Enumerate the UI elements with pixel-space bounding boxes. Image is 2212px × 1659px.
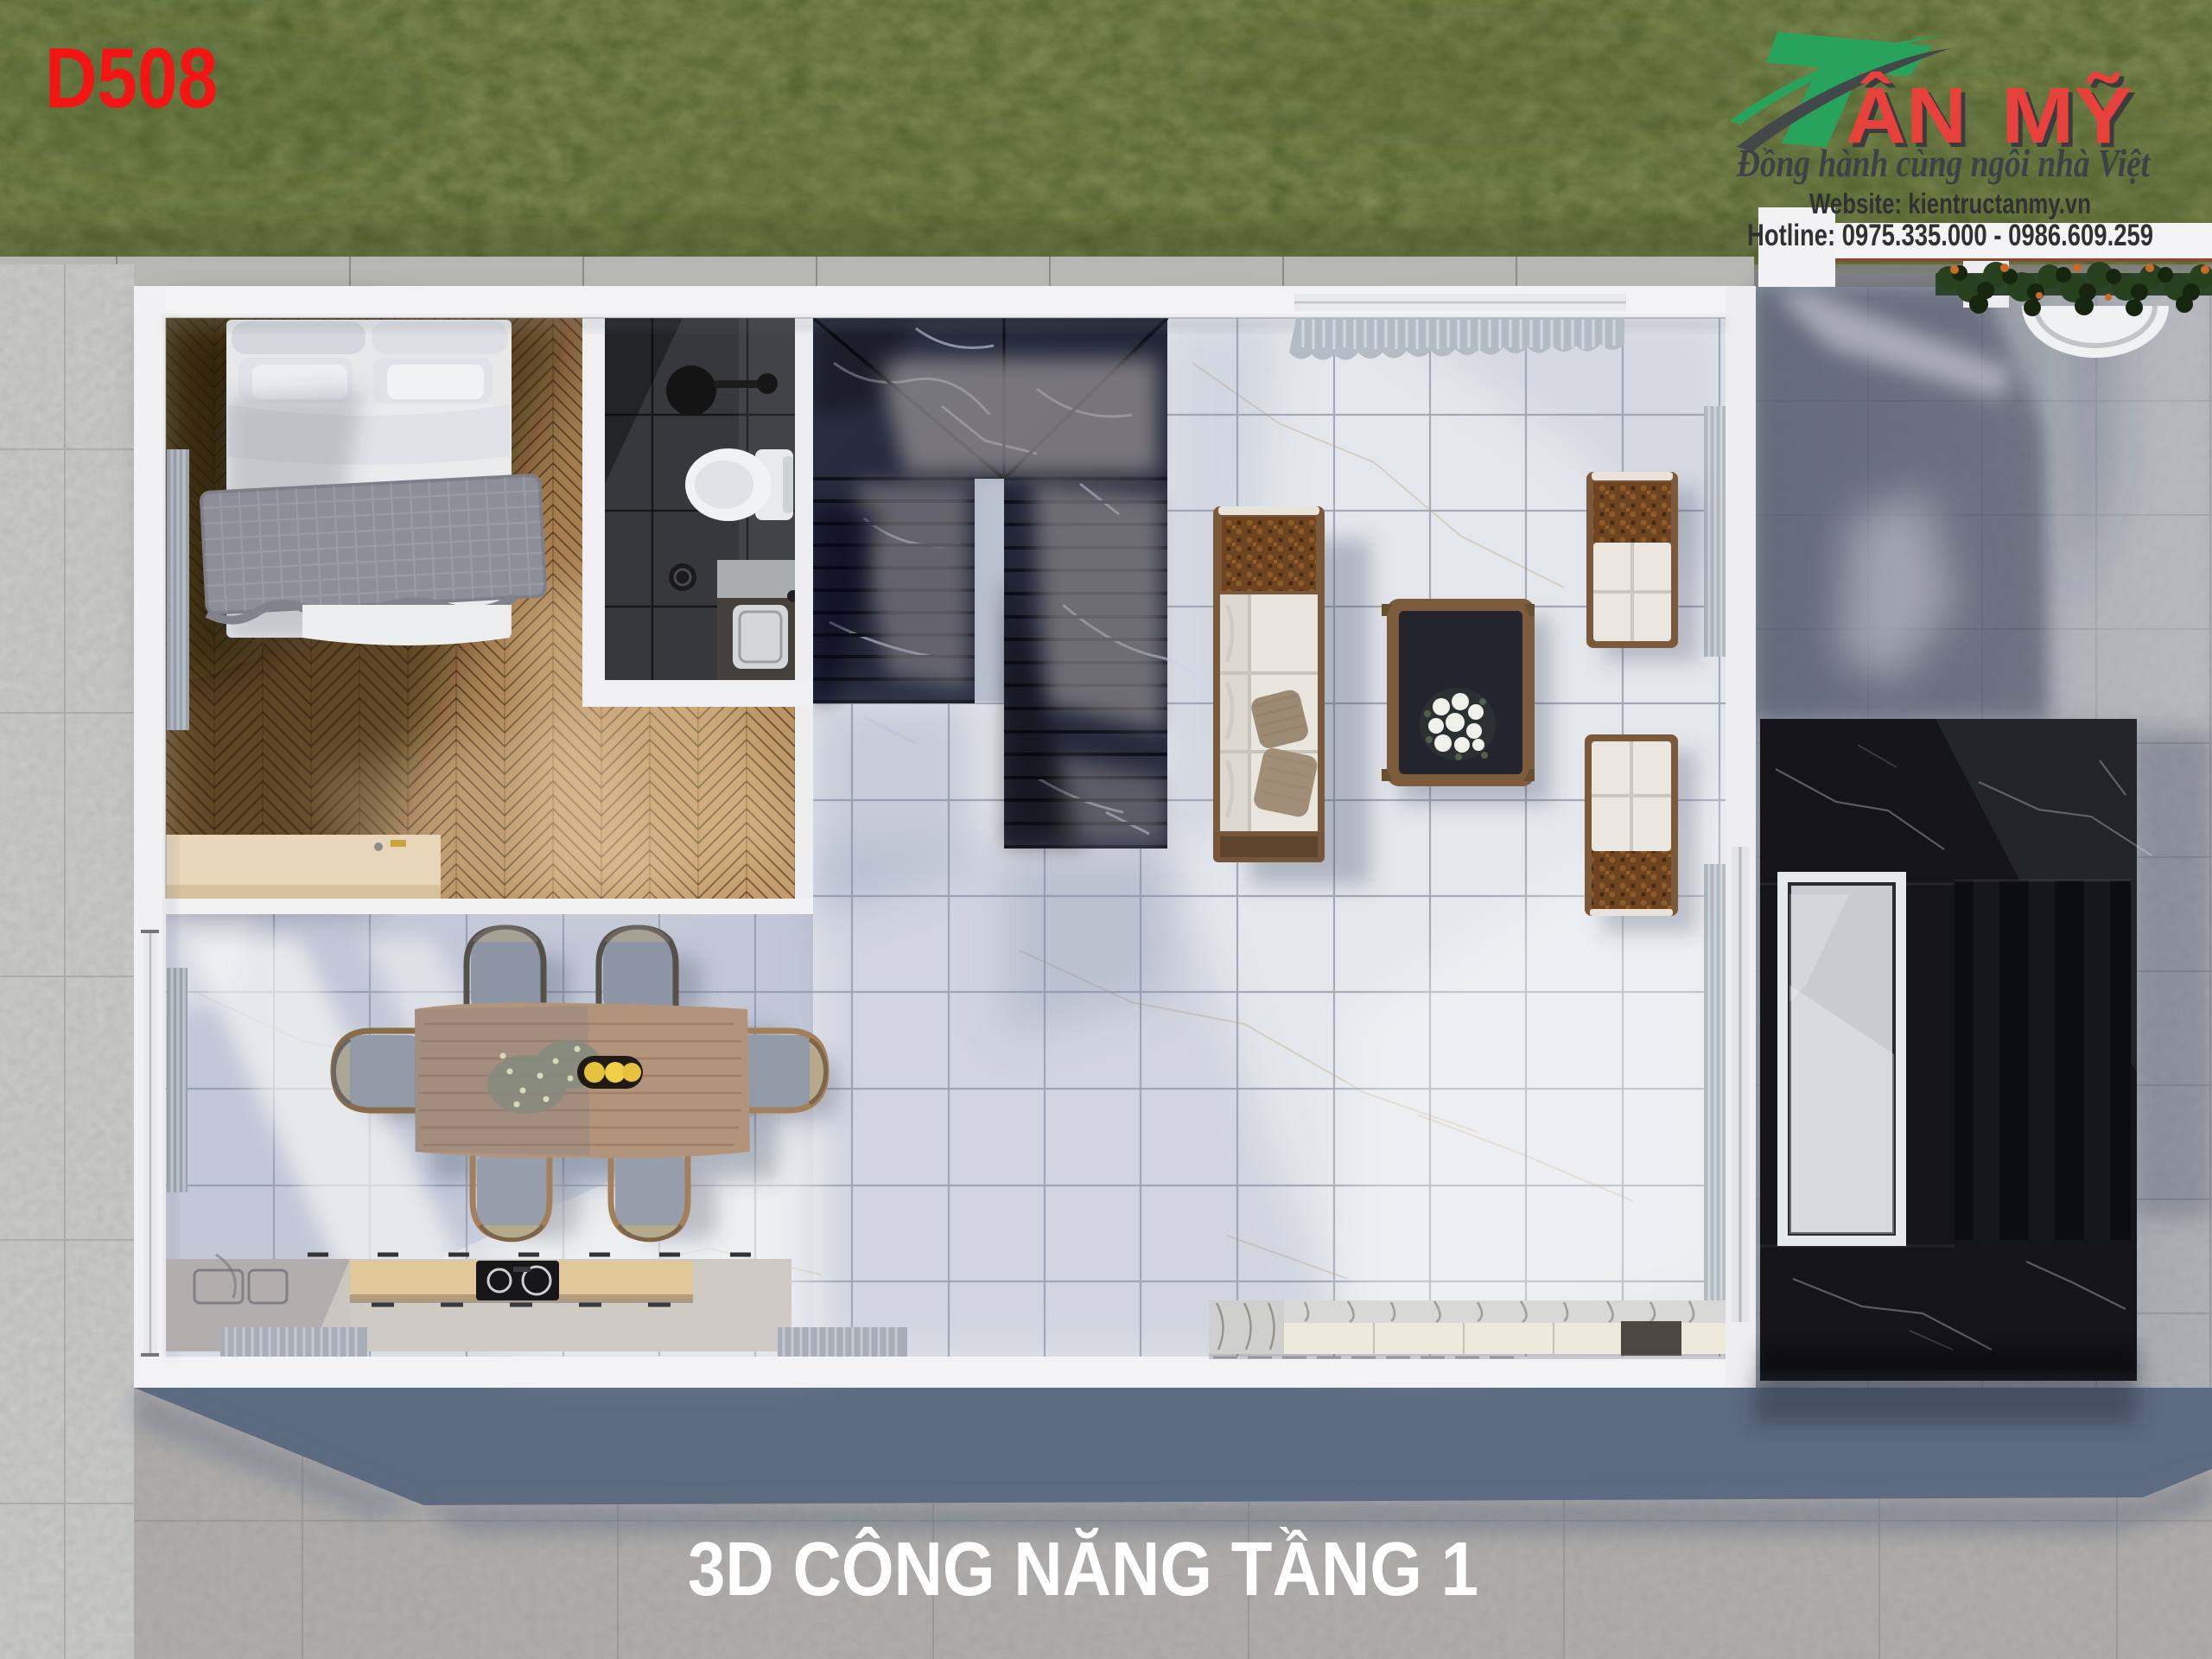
svg-text:3D CÔNG NĂNG TẦNG 1: 3D CÔNG NĂNG TẦNG 1 <box>688 1526 1478 1611</box>
svg-text:Đồng hành cùng ngôi nhà Việt: Đồng hành cùng ngôi nhà Việt <box>1736 141 2151 185</box>
svg-text:D508: D508 <box>45 30 218 125</box>
svg-text:Website: kientructanmy.vn: Website: kientructanmy.vn <box>1809 188 2091 219</box>
svg-text:Hotline: 0975.335.000 - 0986.: Hotline: 0975.335.000 - 0986.609.259 <box>1747 219 2153 252</box>
